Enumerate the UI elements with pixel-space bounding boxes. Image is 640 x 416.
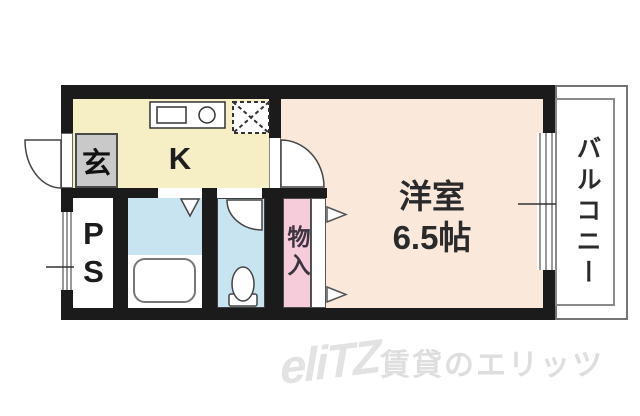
- room-door-opening: [269, 138, 281, 188]
- ps-window-icon: [61, 212, 73, 290]
- watermark-text: 賃貸のエリッツ: [380, 340, 604, 384]
- wall-top: [61, 85, 555, 99]
- entrance-door-opening: [61, 133, 73, 188]
- closet-sliding-door-icon: [311, 198, 326, 308]
- toilet-room-area: [217, 198, 265, 308]
- entrance-area: 玄: [75, 133, 118, 188]
- western-room-size-label: 6.5帖: [347, 211, 517, 251]
- wall-corridor-left: [61, 188, 158, 198]
- kitchen-label: K: [150, 140, 210, 178]
- floorplan-canvas: バルコニー 物入 玄: [0, 0, 640, 416]
- bathtub-icon: [133, 258, 196, 303]
- balcony-window-icon: [537, 133, 555, 270]
- watermark-logo: eliTZ: [280, 328, 380, 395]
- wall-toilet-closet: [265, 198, 283, 308]
- pipe-space-label: PS: [78, 205, 108, 303]
- wall-ps-bath: [113, 198, 128, 308]
- bathroom-area: [128, 198, 202, 255]
- western-room-label: 洋室: [347, 170, 517, 210]
- wall-bath-toilet: [202, 188, 217, 308]
- wall-kitchen-room: [269, 99, 281, 138]
- entrance-door-swing-icon: [25, 140, 61, 188]
- closet-area: 物入: [283, 198, 311, 308]
- wall-bottom: [61, 308, 555, 320]
- balcony-label: バルコニー: [571, 112, 603, 312]
- wall-corridor-right: [262, 188, 327, 198]
